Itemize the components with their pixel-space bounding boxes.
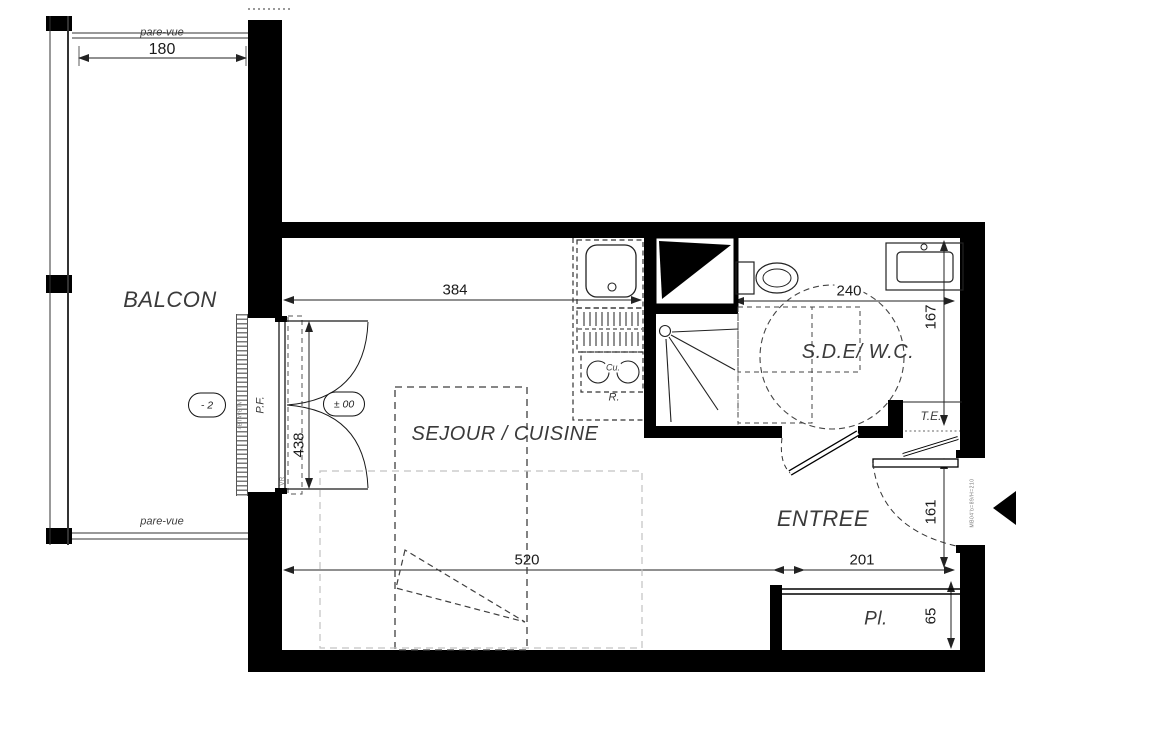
level-marker-main: ± 00 [323,392,365,417]
dim-bay-height: 438 [292,432,307,457]
toilet-icon [736,262,798,294]
room-label-sde: S.D.E/ W.C. [802,342,915,362]
dim-sde-width: 240 [834,284,863,299]
cooktop-label: Cu. [605,364,621,373]
floor-plan-drawing [0,0,1161,737]
level-marker-balcony: - 2 [188,393,226,418]
fridge-label: R. [609,393,620,404]
dim-placard-depth: 65 [924,608,939,625]
washbasin-icon [886,243,963,290]
pare-vue-label-bottom: pare-vue [140,517,183,528]
shutter-label: VR [280,476,286,485]
dim-sde-depth: 167 [924,304,939,329]
dim-sejour-length: 520 [514,553,539,568]
room-label-sejour: SEJOUR / CUISINE [412,424,599,444]
window-code-label: 4BTAVBTV [239,401,244,430]
sink-icon [586,245,636,297]
shower-tray-icon [660,326,739,423]
dim-entree-depth: 161 [924,499,939,524]
pare-vue-label-top: pare-vue [140,28,183,39]
entrance-door [873,459,958,546]
bathroom-door [781,433,858,473]
door-code-label: MB04'b=89/H=210 [971,478,976,527]
dim-balcony-width: 180 [149,42,176,58]
room-label-entree: ENTREE [777,508,869,530]
window-type-label: P.F. [256,396,267,413]
shower [654,236,738,426]
dim-entree-width: 201 [849,553,874,568]
bathroom-fixtures [736,243,963,429]
floor-plan: pare-vue 180 BALCON - 2 P.F. 4BTAVBTV 43… [0,0,1161,737]
entrance-arrow-icon [993,491,1016,525]
te-label: T.E. [921,410,942,422]
dim-sejour-width: 384 [442,283,467,298]
closet-sliding-door [782,589,962,594]
room-label-placard: Pl. [864,610,888,629]
drainer-icon [578,312,642,346]
room-label-balcon: BALCON [123,289,216,311]
